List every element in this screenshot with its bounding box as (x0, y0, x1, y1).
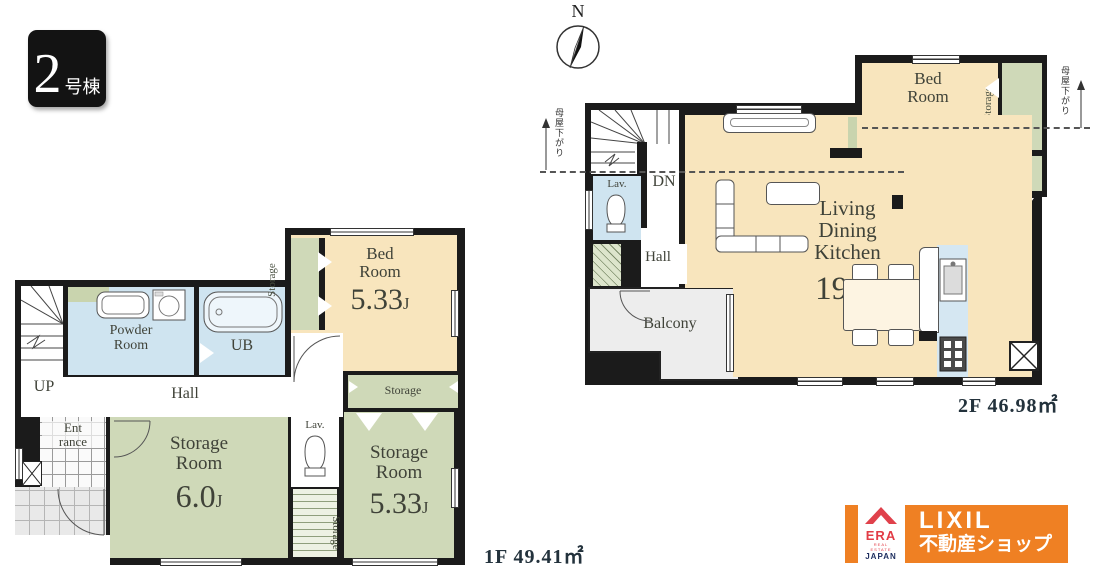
2f-stairs-inner-wall (637, 142, 647, 174)
1f-bedroom-door-arc (292, 334, 342, 384)
building-badge: 2 号棟 (28, 30, 106, 107)
1f-entrance-label: Ent rance (42, 421, 104, 448)
1f-bottom-window-right (352, 558, 438, 566)
2f-roof-note-right: 母屋下がり (1058, 66, 1072, 130)
2f-stove-icon (939, 336, 967, 372)
1f-sink-icon (96, 291, 150, 319)
2f-lavatory-label: Lav. (595, 179, 639, 190)
2f-toilet-icon (603, 193, 629, 237)
1f-exterior-cutout (15, 535, 110, 565)
2f-dining-table (843, 279, 921, 331)
era-logo: ERA REAL ESTATE JAPAN (863, 505, 899, 563)
1f-pillar-cross (22, 461, 42, 486)
1f-bedroom-label: Bed Room (320, 245, 440, 280)
2f-hall-closet (593, 244, 621, 286)
2f-roof-note-left-arrow (541, 118, 551, 172)
2f-tv-board-inner (730, 118, 809, 127)
1f-powder-room-label: Powder Room (75, 324, 187, 353)
building-number-suffix: 号棟 (65, 73, 101, 99)
2f-roof-slope-line-left (540, 171, 904, 173)
2f-ldk-label: Living Dining Kitchen (775, 198, 920, 263)
2f-kitchen-sink-icon (939, 258, 967, 302)
1f-up-label: UP (22, 379, 66, 396)
1f-washer-icon (152, 289, 186, 321)
2f-dining-chair-3 (852, 329, 878, 346)
1f-left-wall-window (15, 448, 23, 480)
compass-icon (554, 22, 602, 72)
logo-accent-bar (845, 505, 858, 563)
1f-bedroom-top-window (330, 228, 414, 236)
1f-front-door-arc (56, 487, 108, 537)
2f-kitchen-peninsula (919, 247, 939, 333)
1f-storage-room-b-door-mark-right (412, 413, 438, 431)
1f-bathroom-door-mark (200, 343, 214, 363)
1f-bedroom-right-window (451, 290, 459, 337)
1f-storage-room-a-size: 6.0J (124, 480, 274, 513)
1f-bottom-window-left (160, 558, 242, 566)
2f-ldk-bottom-window-a (797, 377, 843, 386)
2f-lav-window (585, 190, 593, 230)
2f-bedroom-label: Bed Room (868, 70, 988, 105)
1f-storage-room-b (344, 412, 454, 558)
lixil-wordmark: LIXIL (919, 509, 1068, 533)
1f-hall-label: Hall (130, 386, 240, 403)
2f-bedroom-top-window (912, 55, 960, 64)
1f-storage-room-b-size: 5.33J (344, 488, 454, 519)
2f-wall-niche (848, 117, 857, 148)
1f-storage-room-b-label: Storage Room (344, 443, 454, 483)
lixil-panel: LIXIL 不動産ショップ (905, 505, 1068, 563)
1f-toilet-icon (301, 434, 329, 480)
lixil-shop-label: 不動産ショップ (919, 533, 1068, 557)
2f-dn-label: DN (643, 174, 685, 191)
2f-balcony-door-arc (618, 289, 654, 325)
era-tagline: REAL ESTATE (863, 542, 899, 552)
1f-area-label: 1F 49.41㎡ (484, 540, 584, 569)
2f-ldk-bottom-window-c (962, 377, 996, 386)
1f-storage-closet-top-label: Storage (352, 384, 454, 396)
2f-kitchen-wall-stub (919, 331, 937, 341)
1f-stairs-icon (21, 286, 63, 377)
2f-ldk-bottom-window-b (876, 377, 914, 386)
compass-north-label: N (563, 2, 593, 21)
1f-storage-room-b-window (451, 468, 459, 508)
era-country: JAPAN (863, 552, 899, 561)
era-house-icon (864, 505, 898, 525)
2f-area-label: 2F 46.98㎡ (958, 389, 1058, 418)
2f-roof-note-left: 母屋下がり (552, 108, 566, 172)
1f-storage-room-b-door-mark-left (356, 413, 382, 431)
2f-balcony-shape (585, 285, 745, 385)
floorplan-page: 2 号棟 N Powder Room (0, 0, 1100, 584)
2f-hall-ldk-opening (677, 244, 687, 284)
building-number: 2 (34, 51, 62, 99)
2f-roof-note-right-arrow (1076, 80, 1086, 130)
era-wordmark: ERA (863, 530, 899, 542)
1f-bedroom-size: 5.33J (320, 284, 440, 315)
2f-stairs-icon (591, 110, 679, 174)
1f-storage-closet-mid-label: Storage (330, 504, 342, 562)
2f-balcony-sliding-door (726, 294, 734, 372)
2f-dining-chair-4 (888, 329, 914, 346)
1f-bedroom-closet (291, 238, 319, 330)
2f-refrigerator-cross (1009, 341, 1039, 371)
1f-bathroom-label: UB (212, 338, 272, 355)
2f-wall-stub-a (830, 148, 862, 158)
2f-roof-slope-line-right (862, 127, 1090, 129)
1f-storage-room-a-label: Storage Room (124, 434, 274, 474)
2f-closet-door-mark-upper (985, 78, 999, 98)
1f-lavatory-label: Lav. (293, 420, 337, 431)
1f-bedroom-closet-label: Storage (266, 251, 278, 309)
